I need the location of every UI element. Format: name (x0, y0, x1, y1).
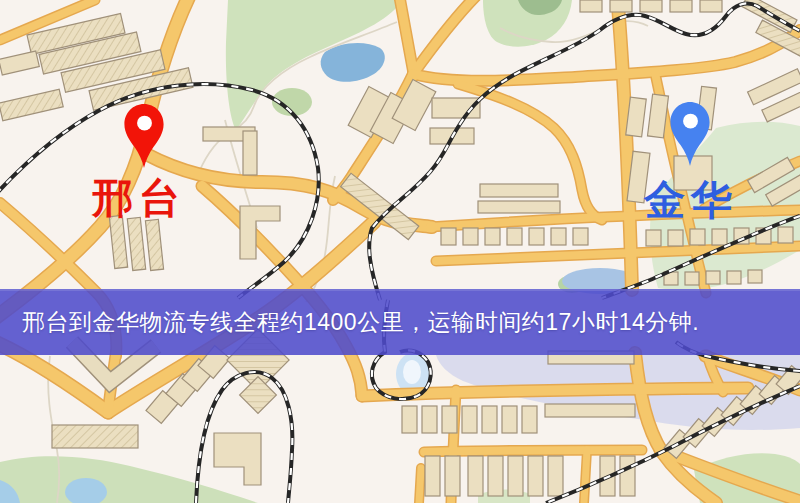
logistics-route-map: 邢台 金华 邢台到金华物流专线全程约1400公里，运输时间约17小时14分钟. (0, 0, 800, 503)
origin-pin-shape (124, 104, 163, 168)
origin-city-label: 邢台 (92, 178, 186, 219)
destination-pin-shape (670, 102, 709, 166)
map-canvas[interactable] (0, 0, 800, 503)
destination-pin-icon[interactable] (669, 101, 711, 167)
route-info-banner: 邢台到金华物流专线全程约1400公里，运输时间约17小时14分钟. (0, 289, 800, 355)
route-info-text: 邢台到金华物流专线全程约1400公里，运输时间约17小时14分钟. (0, 307, 699, 338)
destination-city-label: 金华 (644, 180, 738, 221)
origin-pin-icon[interactable] (123, 103, 165, 169)
